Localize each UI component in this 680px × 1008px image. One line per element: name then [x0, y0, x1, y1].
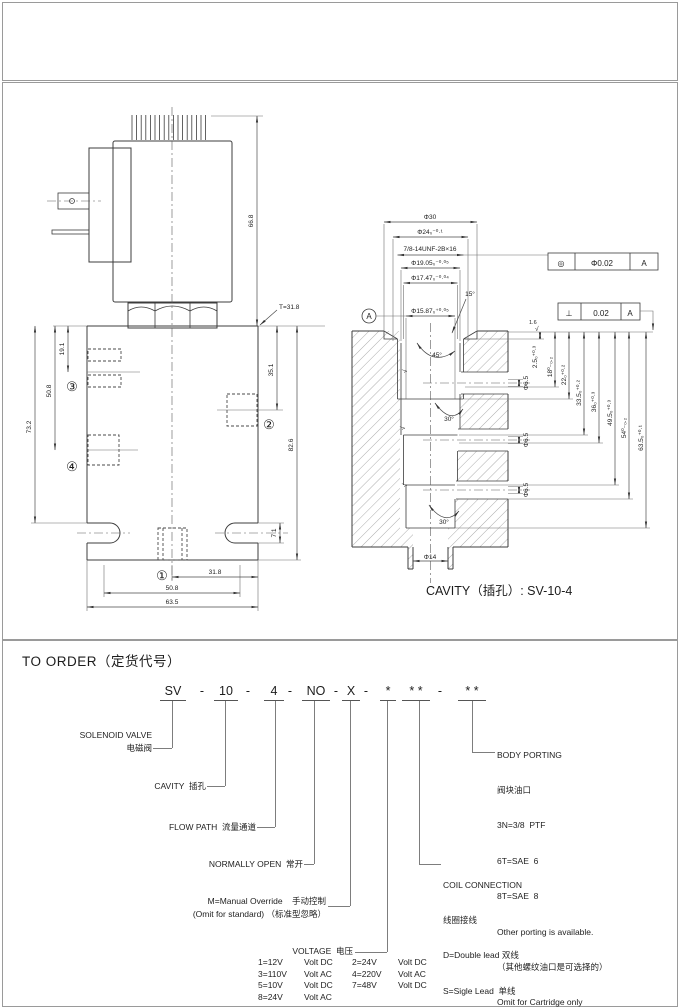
- dims-d65: Φ6.5 Φ6.5 Φ6.5: [508, 376, 530, 498]
- angle-30a-text: 30°: [444, 415, 454, 423]
- leader-porting-v: [472, 701, 473, 752]
- dim-31-8-text: 31.8: [209, 569, 222, 576]
- voltage-cell: [398, 992, 446, 1002]
- code-4: 4: [264, 684, 284, 701]
- dim-d65-text-1: Φ6.5: [523, 376, 530, 391]
- depth-2-5: 2.5₀⁺⁰·³: [531, 345, 539, 368]
- perpendicularity-icon: ⊥: [566, 309, 573, 318]
- label-manual-1: M=Manual Override 手动控制: [166, 895, 326, 908]
- leader-cavity-h: [207, 786, 225, 787]
- roughness-icon-bore-2: √: [399, 426, 407, 430]
- dim-d1747-text: Φ17.47₀⁻⁰·⁰⁴: [411, 274, 449, 282]
- voltage-cell: Volt AC: [304, 992, 352, 1002]
- angle-15-text: 15°: [465, 290, 475, 298]
- voltage-cell: 8=24V: [258, 992, 304, 1002]
- leader-no-h: [304, 864, 314, 865]
- voltage-cell: 5=10V: [258, 980, 304, 990]
- voltage-cell: Volt DC: [398, 957, 446, 967]
- code-dash-3: -: [286, 684, 294, 700]
- fcf1-tolerance: Φ0.02: [591, 259, 614, 268]
- dim-thread-text: 7/8-14UNF-2B×16: [404, 246, 457, 253]
- code-dash-4: -: [332, 684, 340, 700]
- voltage-cell: Volt AC: [398, 969, 446, 979]
- leader-coil-h: [419, 864, 441, 865]
- angle-45-text: 45°: [432, 351, 442, 359]
- voltage-row-3: 5=10VVolt DC7=48VVolt DC: [258, 980, 446, 990]
- voltage-cell: Volt AC: [304, 969, 352, 979]
- code-sv: SV: [160, 684, 186, 701]
- leader-no-v: [314, 701, 315, 864]
- port1-inner: [163, 528, 182, 560]
- fcf-concentricity: ◎ Φ0.02 A: [548, 253, 658, 270]
- dim-35-1-text: 35.1: [268, 363, 275, 376]
- label-manual-2: (Omit for standard) （标准型忽略）: [166, 908, 326, 921]
- leader-voltage-h: [355, 952, 387, 953]
- dim-63-5-text: 63.5: [166, 599, 179, 606]
- voltage-cell: Volt DC: [398, 980, 446, 990]
- depth-63-5: 63.5₀⁺⁰·¹: [637, 424, 645, 451]
- label-cavity: CAVITY 插孔: [106, 780, 206, 793]
- hatch-fill: [352, 331, 508, 569]
- code-dash-6: -: [436, 684, 444, 700]
- porting-line: 8T=SAE 8: [497, 891, 608, 903]
- dim-73-2-text: 73.2: [26, 420, 33, 433]
- to-order-title: TO ORDER（定货代号）: [22, 650, 181, 670]
- dim-50-8-left-text: 50.8: [46, 384, 53, 397]
- voltage-cell: 2=24V: [352, 957, 398, 967]
- nut-facets: [155, 303, 190, 328]
- code-star-star-1: * *: [402, 684, 430, 701]
- label-solenoid-zh: 电磁阀: [57, 742, 152, 755]
- body-porting-block: BODY PORTING 阀块油口 3N=3/8 PTF 6T=SAE 6 8T…: [497, 726, 608, 1008]
- dim-d24-text: Φ24₀⁻⁰·¹: [417, 228, 443, 236]
- cavity-section: Φ30 Φ24₀⁻⁰·¹ 7/8-14UNF-2B×16 Φ19.05₀⁻⁰·⁰…: [352, 214, 658, 598]
- voltage-cell: Volt DC: [304, 957, 352, 967]
- leader-flow-v: [275, 701, 276, 827]
- leader-manual-v: [350, 701, 351, 906]
- technical-drawing: ③ ④ ② ① 66.8 T=31.8 19.1 50.8 73.2 35.1: [3, 83, 677, 637]
- fcf1-datum: A: [641, 259, 647, 268]
- depth-54: 54⁰₋₀.₂: [620, 417, 628, 438]
- nut-chamfer: [128, 306, 217, 311]
- cavity-title: CAVITY（插孔）: SV-10-4: [426, 584, 572, 598]
- voltage-cell: [352, 992, 398, 1002]
- label-solenoid-en: SOLENOID VALVE: [57, 729, 152, 742]
- header-frame: [2, 2, 678, 81]
- datum-label: A: [366, 312, 372, 321]
- voltage-row-1: 1=12VVolt DC2=24VVolt DC: [258, 957, 446, 967]
- roughness-icon-bore-3: √: [401, 483, 409, 487]
- code-no: NO: [302, 684, 330, 701]
- dim-66-8-text: 66.8: [248, 214, 255, 227]
- voltage-cell: 4=220V: [352, 969, 398, 979]
- datasheet-page: ③ ④ ② ① 66.8 T=31.8 19.1 50.8 73.2 35.1: [0, 0, 680, 1008]
- code-dash-1: -: [198, 684, 206, 700]
- port3-slot-a: [88, 349, 121, 361]
- leader-voltage-v: [387, 701, 388, 952]
- port3-number: ③: [66, 379, 78, 394]
- porting-line: Other porting is available.: [497, 927, 608, 939]
- voltage-row-4: 8=24VVolt AC: [258, 992, 446, 1002]
- porting-line: （其他螺纹油口是可选择的）: [497, 962, 608, 974]
- code-x: X: [342, 684, 360, 701]
- angle-30b-text: 30°: [439, 518, 449, 526]
- angle-30a-arc: [435, 403, 463, 416]
- dim-7-1-text: 7.1: [271, 528, 278, 537]
- depth-22: 22₀⁺⁰·²: [560, 364, 568, 385]
- voltage-row-2: 3=110VVolt AC4=220VVolt AC: [258, 969, 446, 979]
- leader-flow-h: [257, 827, 275, 828]
- code-star-star-2: * *: [458, 684, 486, 701]
- depth-33-5: 33.5₀⁺⁰·²: [575, 379, 583, 406]
- fcf-perpendicularity: ⊥ 0.02 A: [558, 303, 653, 330]
- porting-line: 阀块油口: [497, 785, 608, 797]
- dim-d1905-text: Φ19.05₀⁻⁰·⁰⁵: [411, 259, 449, 267]
- voltage-cell: Volt DC: [304, 980, 352, 990]
- leader-sv-h: [153, 748, 172, 749]
- porting-line: 6T=SAE 6: [497, 856, 608, 868]
- dim-50-8-bottom-text: 50.8: [166, 585, 179, 592]
- fcf2-tolerance: 0.02: [593, 309, 609, 318]
- leader-manual-h: [328, 906, 350, 907]
- fcf2-datum: A: [627, 309, 633, 318]
- dim-d1587-text: Φ15.87₀⁺⁰·⁰⁵: [411, 307, 449, 315]
- roughness-icon-bore-1: √: [401, 369, 409, 373]
- port3-slot-b: [88, 375, 121, 387]
- leader-sv-v: [172, 701, 173, 748]
- depth-18: 18⁰₋₀.₂: [546, 356, 554, 377]
- connector-body: [89, 148, 131, 262]
- leader-coil-v: [419, 701, 420, 864]
- dim-d14-text: Φ14: [424, 554, 437, 561]
- porting-line: Omit for Cartridge only: [497, 997, 608, 1008]
- code-10: 10: [214, 684, 238, 701]
- dim-82-6-text: 82.6: [288, 438, 295, 451]
- leader-cavity-v: [225, 701, 226, 786]
- t-label: T=31.8: [279, 304, 300, 311]
- leader-porting-h: [472, 752, 495, 753]
- valve-body: [87, 326, 258, 560]
- depth-49-5: 49.5₀⁺⁰·³: [606, 399, 614, 426]
- valve-side-view: ③ ④ ② ① 66.8 T=31.8 19.1 50.8 73.2 35.1: [26, 107, 325, 611]
- code-star: *: [380, 684, 396, 701]
- depth-36: 36₀⁺⁰·³: [590, 391, 598, 412]
- dim-19-1-text: 19.1: [59, 342, 66, 355]
- port4-number: ④: [66, 459, 78, 474]
- dim-d30-text: Φ30: [424, 214, 437, 221]
- coil-laminations: [132, 115, 206, 140]
- voltage-cell: 3=110V: [258, 969, 304, 979]
- port1-slot: [158, 528, 187, 560]
- voltage-cell: 7=48V: [352, 980, 398, 990]
- code-dash-5: -: [362, 684, 370, 700]
- port1-number: ①: [156, 568, 168, 583]
- voltage-cell: 1=12V: [258, 957, 304, 967]
- code-dash-2: -: [244, 684, 252, 700]
- port2-number: ②: [263, 417, 275, 432]
- porting-line: 3N=3/8 PTF: [497, 820, 608, 832]
- label-flow-path: FLOW PATH 流量通道: [136, 821, 256, 834]
- t-leader: [260, 310, 277, 325]
- porting-line: BODY PORTING: [497, 750, 608, 762]
- connector-pin: [52, 230, 89, 234]
- angle-30b-arc: [429, 505, 459, 518]
- concentricity-icon: ◎: [558, 259, 565, 268]
- label-normally-open: NORMALLY OPEN 常开: [173, 858, 303, 871]
